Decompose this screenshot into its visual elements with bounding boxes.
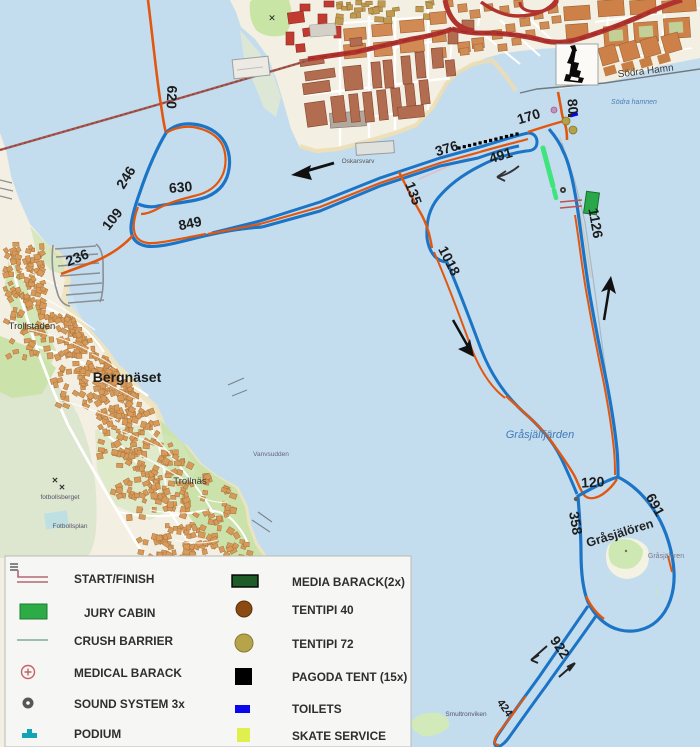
svg-text:630: 630	[168, 178, 193, 196]
svg-text:Bergnäset: Bergnäset	[93, 369, 162, 385]
svg-text:Södra hamnen: Södra hamnen	[611, 99, 657, 106]
svg-text:Trollstaden: Trollstaden	[9, 321, 56, 332]
svg-text:JURY CABIN: JURY CABIN	[84, 606, 155, 620]
svg-text:Gråsjälören: Gråsjälören	[648, 552, 684, 560]
svg-text:MEDICAL BARACK: MEDICAL BARACK	[74, 666, 182, 680]
svg-text:PAGODA TENT (15x): PAGODA TENT (15x)	[292, 670, 407, 684]
svg-text:✕: ✕	[268, 13, 276, 23]
svg-text:Oskarsvarv: Oskarsvarv	[342, 158, 376, 165]
svg-text:START/FINISH: START/FINISH	[74, 572, 154, 586]
svg-text:CRUSH BARRIER: CRUSH BARRIER	[74, 634, 173, 648]
svg-text:SKATE SERVICE: SKATE SERVICE	[292, 729, 386, 743]
svg-text:Fotbollsplan: Fotbollsplan	[52, 523, 87, 530]
svg-text:PODIUM: PODIUM	[74, 727, 121, 741]
svg-text:MEDIA BARACK(2x): MEDIA BARACK(2x)	[292, 575, 405, 589]
svg-text:SOUND SYSTEM 3x: SOUND SYSTEM 3x	[74, 697, 185, 711]
svg-text:80: 80	[564, 98, 581, 115]
svg-text:TOILETS: TOILETS	[292, 702, 342, 716]
svg-text:✕: ✕	[59, 483, 66, 492]
svg-text:✕: ✕	[52, 476, 59, 485]
svg-text:Trollnäs: Trollnäs	[173, 476, 207, 487]
svg-text:Gråsjälfjärden: Gråsjälfjärden	[506, 429, 574, 441]
svg-text:120: 120	[581, 473, 605, 490]
svg-text:TENTIPI 40: TENTIPI 40	[292, 603, 354, 617]
svg-text:TENTIPI 72: TENTIPI 72	[292, 637, 354, 651]
svg-text:Vanvsudden: Vanvsudden	[253, 451, 289, 458]
svg-text:Smultronviken: Smultronviken	[445, 711, 487, 718]
svg-text:620: 620	[164, 85, 181, 109]
svg-text:fotbollsberget: fotbollsberget	[40, 494, 79, 501]
